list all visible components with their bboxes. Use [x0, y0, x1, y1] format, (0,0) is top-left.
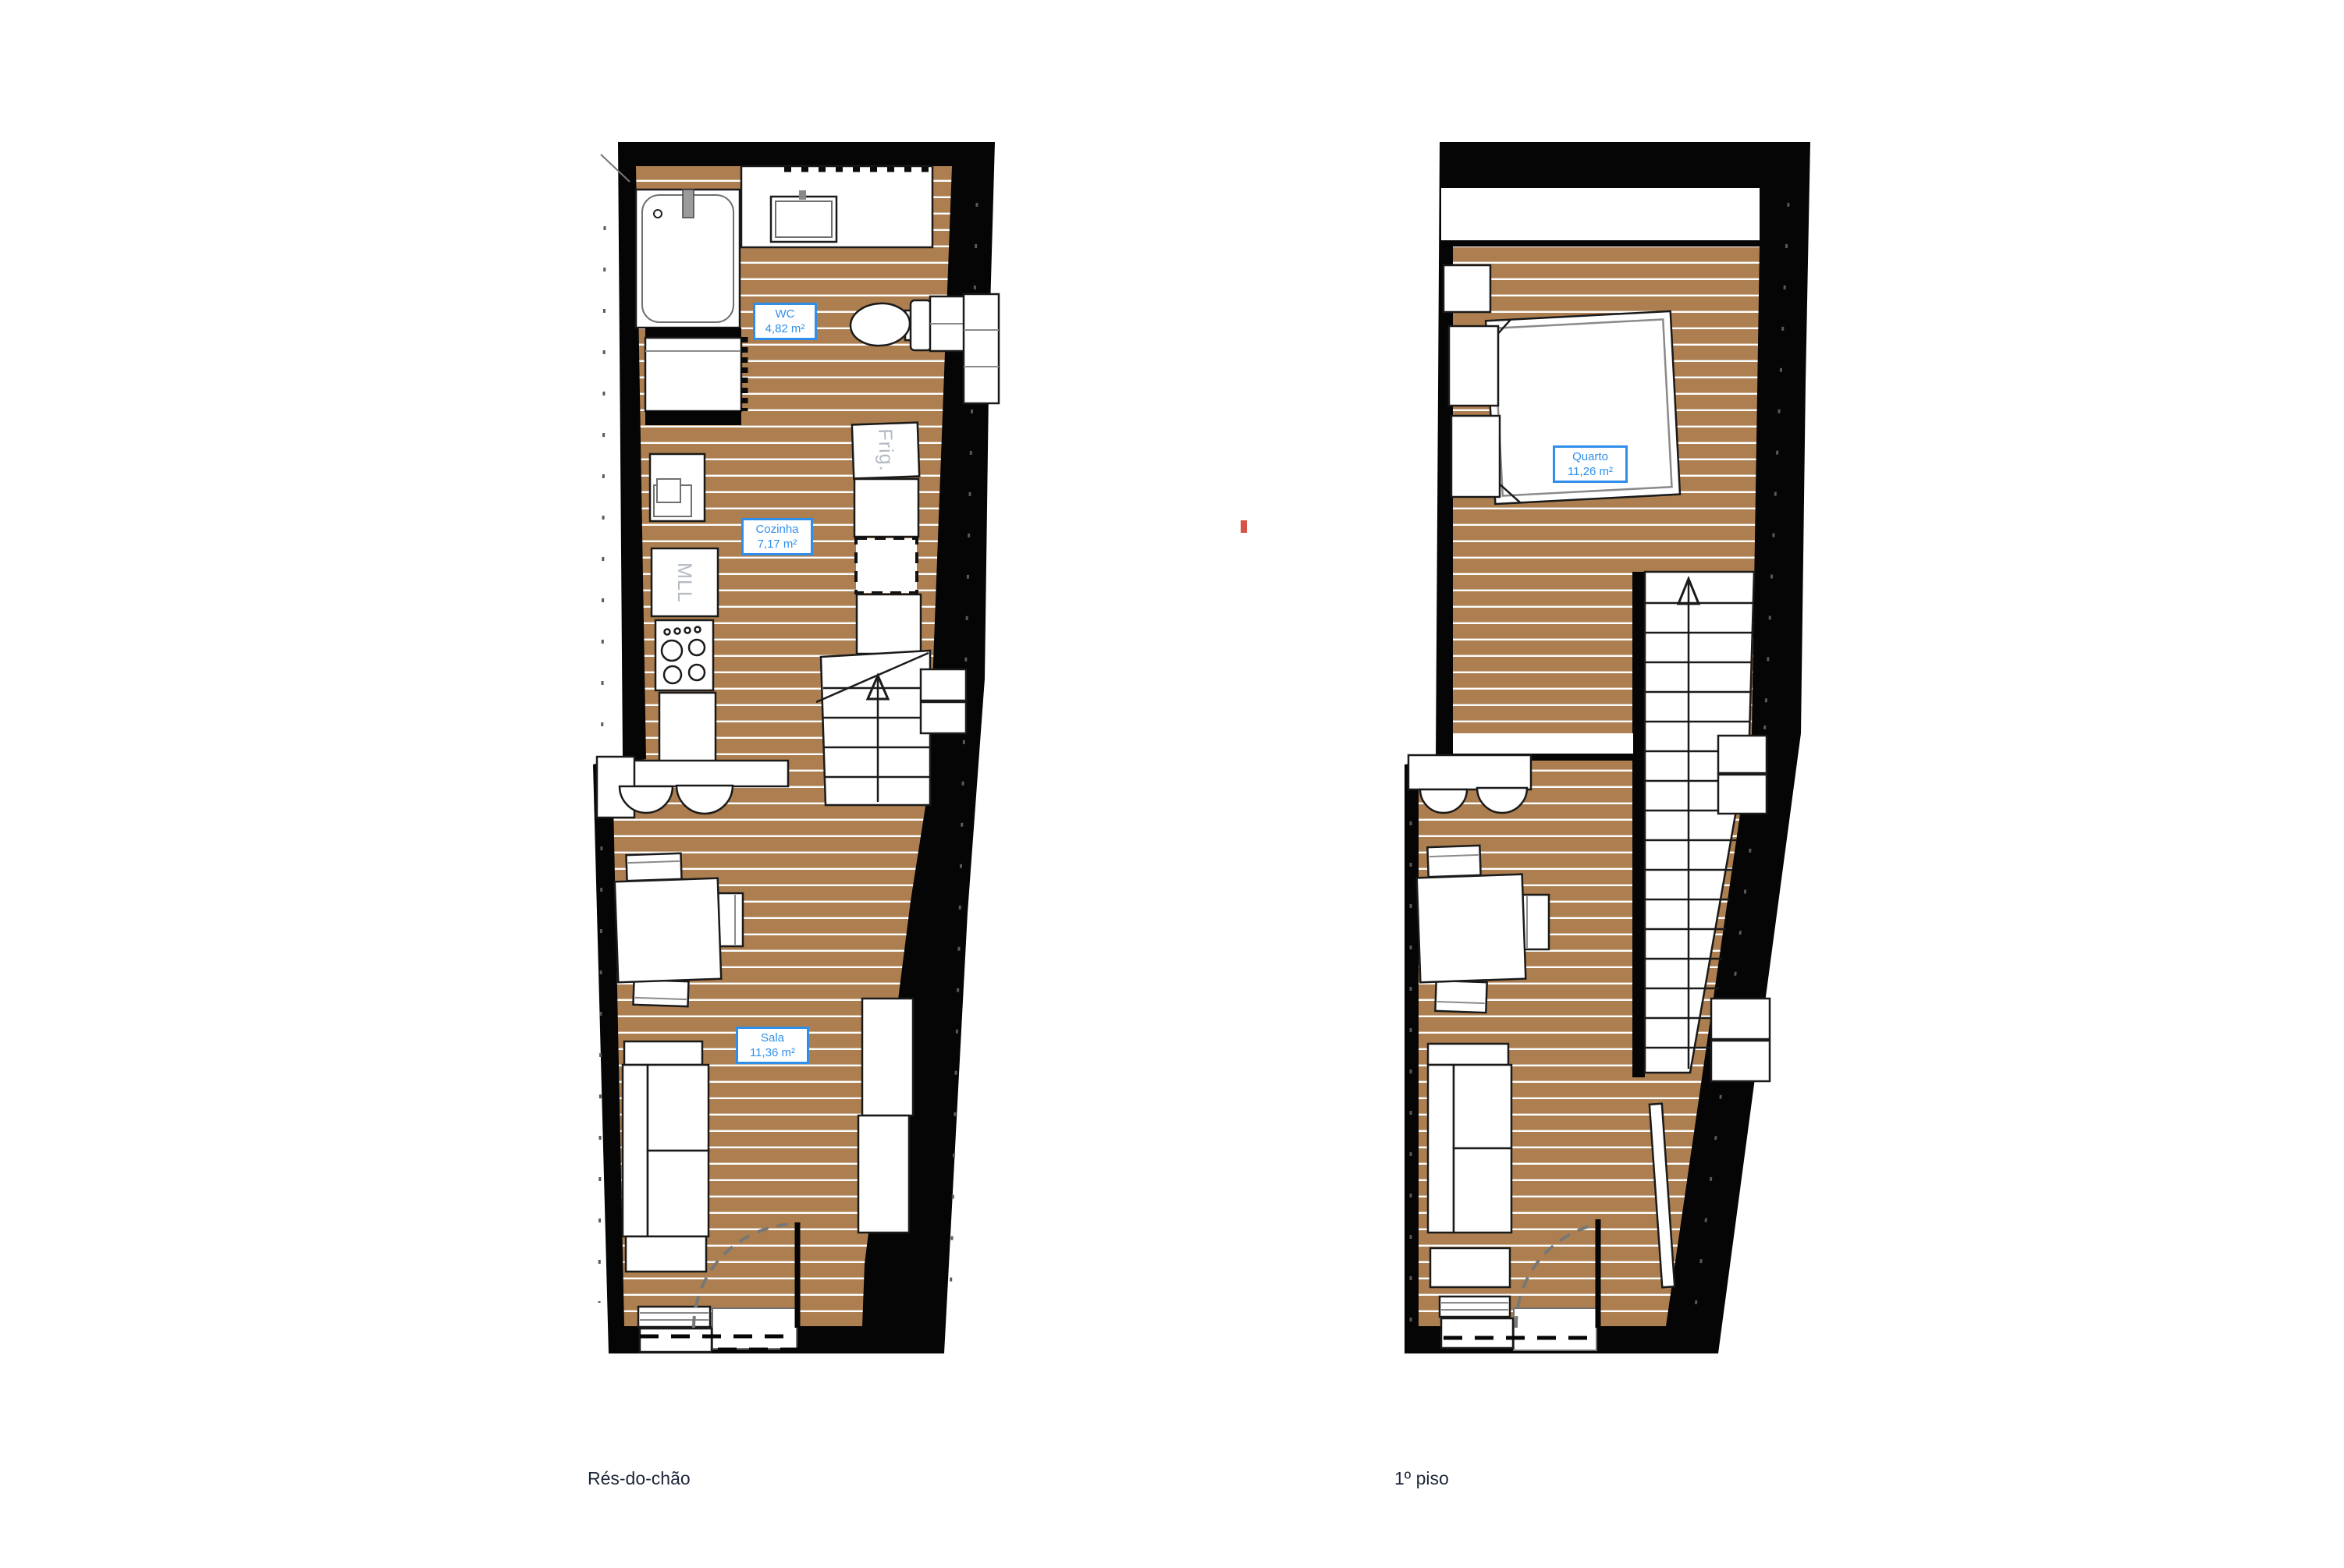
nightstand — [1444, 265, 1490, 312]
kitchen-cabinet-lower — [857, 594, 921, 654]
stairs — [816, 651, 930, 805]
dishwasher-label: MLL — [673, 562, 695, 603]
dining-table — [1417, 874, 1526, 983]
stairs-window — [921, 669, 966, 733]
room-label-cozinha: Cozinha 7,17 m² — [741, 518, 813, 555]
caption-first-floor: 1º piso — [1394, 1468, 1449, 1489]
closet — [1711, 999, 1770, 1039]
page: { "plans": [ { "id": "ground-floor", "ca… — [0, 0, 2344, 1568]
room-label-sala: Sala 11,36 m² — [736, 1027, 809, 1064]
stairs-window — [1718, 736, 1767, 814]
room-area: 4,82 m² — [765, 322, 805, 335]
kitchen-counter — [659, 693, 716, 761]
fridge-label: Frig. — [874, 428, 897, 472]
washing-machine — [645, 338, 741, 411]
void-strip-edge — [1441, 240, 1760, 247]
breakfast-counter — [611, 761, 788, 786]
room-name: Quarto — [1572, 450, 1608, 463]
nightstand — [1449, 326, 1498, 406]
stove — [655, 620, 713, 690]
caption-ground-floor: Rés-do-chão — [588, 1468, 691, 1489]
kitchen-cabinet-upper — [854, 479, 918, 537]
bathtub — [636, 190, 740, 328]
room-label-wc: WC 4,82 m² — [753, 303, 817, 340]
chair — [1435, 981, 1486, 1013]
fridge: Frig. — [852, 423, 919, 479]
room-label-quarto: Quarto 11,26 m² — [1553, 445, 1628, 483]
chair — [633, 980, 688, 1006]
first-floor-plan — [1397, 133, 1834, 1428]
room-area: 7,17 m² — [758, 537, 797, 551]
kitchen-sink-counter — [650, 454, 705, 521]
partition-gap — [1453, 733, 1633, 755]
room-name: Sala — [761, 1031, 784, 1045]
under-counter-appliance — [856, 538, 917, 593]
wall-stub-below-washer — [645, 411, 741, 425]
bathroom-sink — [741, 166, 932, 247]
room-name: Cozinha — [755, 523, 798, 536]
wall-stub-above-washer — [645, 328, 741, 338]
closet — [862, 999, 913, 1116]
dining-table — [615, 878, 721, 983]
stair-wall — [1632, 572, 1645, 1077]
dishwasher: MLL — [652, 548, 718, 616]
nightstand — [1451, 416, 1500, 497]
top-void-strip — [1441, 188, 1760, 240]
room-name: WC — [776, 307, 795, 321]
red-print-artifact — [1241, 520, 1247, 533]
sofa — [1428, 1044, 1511, 1287]
closet — [1711, 1041, 1770, 1081]
chair — [1427, 846, 1480, 877]
room-area: 11,36 m² — [750, 1046, 795, 1059]
counter — [1408, 755, 1531, 789]
closet — [858, 1116, 909, 1233]
sofa — [623, 1041, 709, 1272]
chair — [718, 893, 743, 946]
chair — [626, 853, 681, 881]
room-area: 11,26 m² — [1568, 465, 1613, 478]
